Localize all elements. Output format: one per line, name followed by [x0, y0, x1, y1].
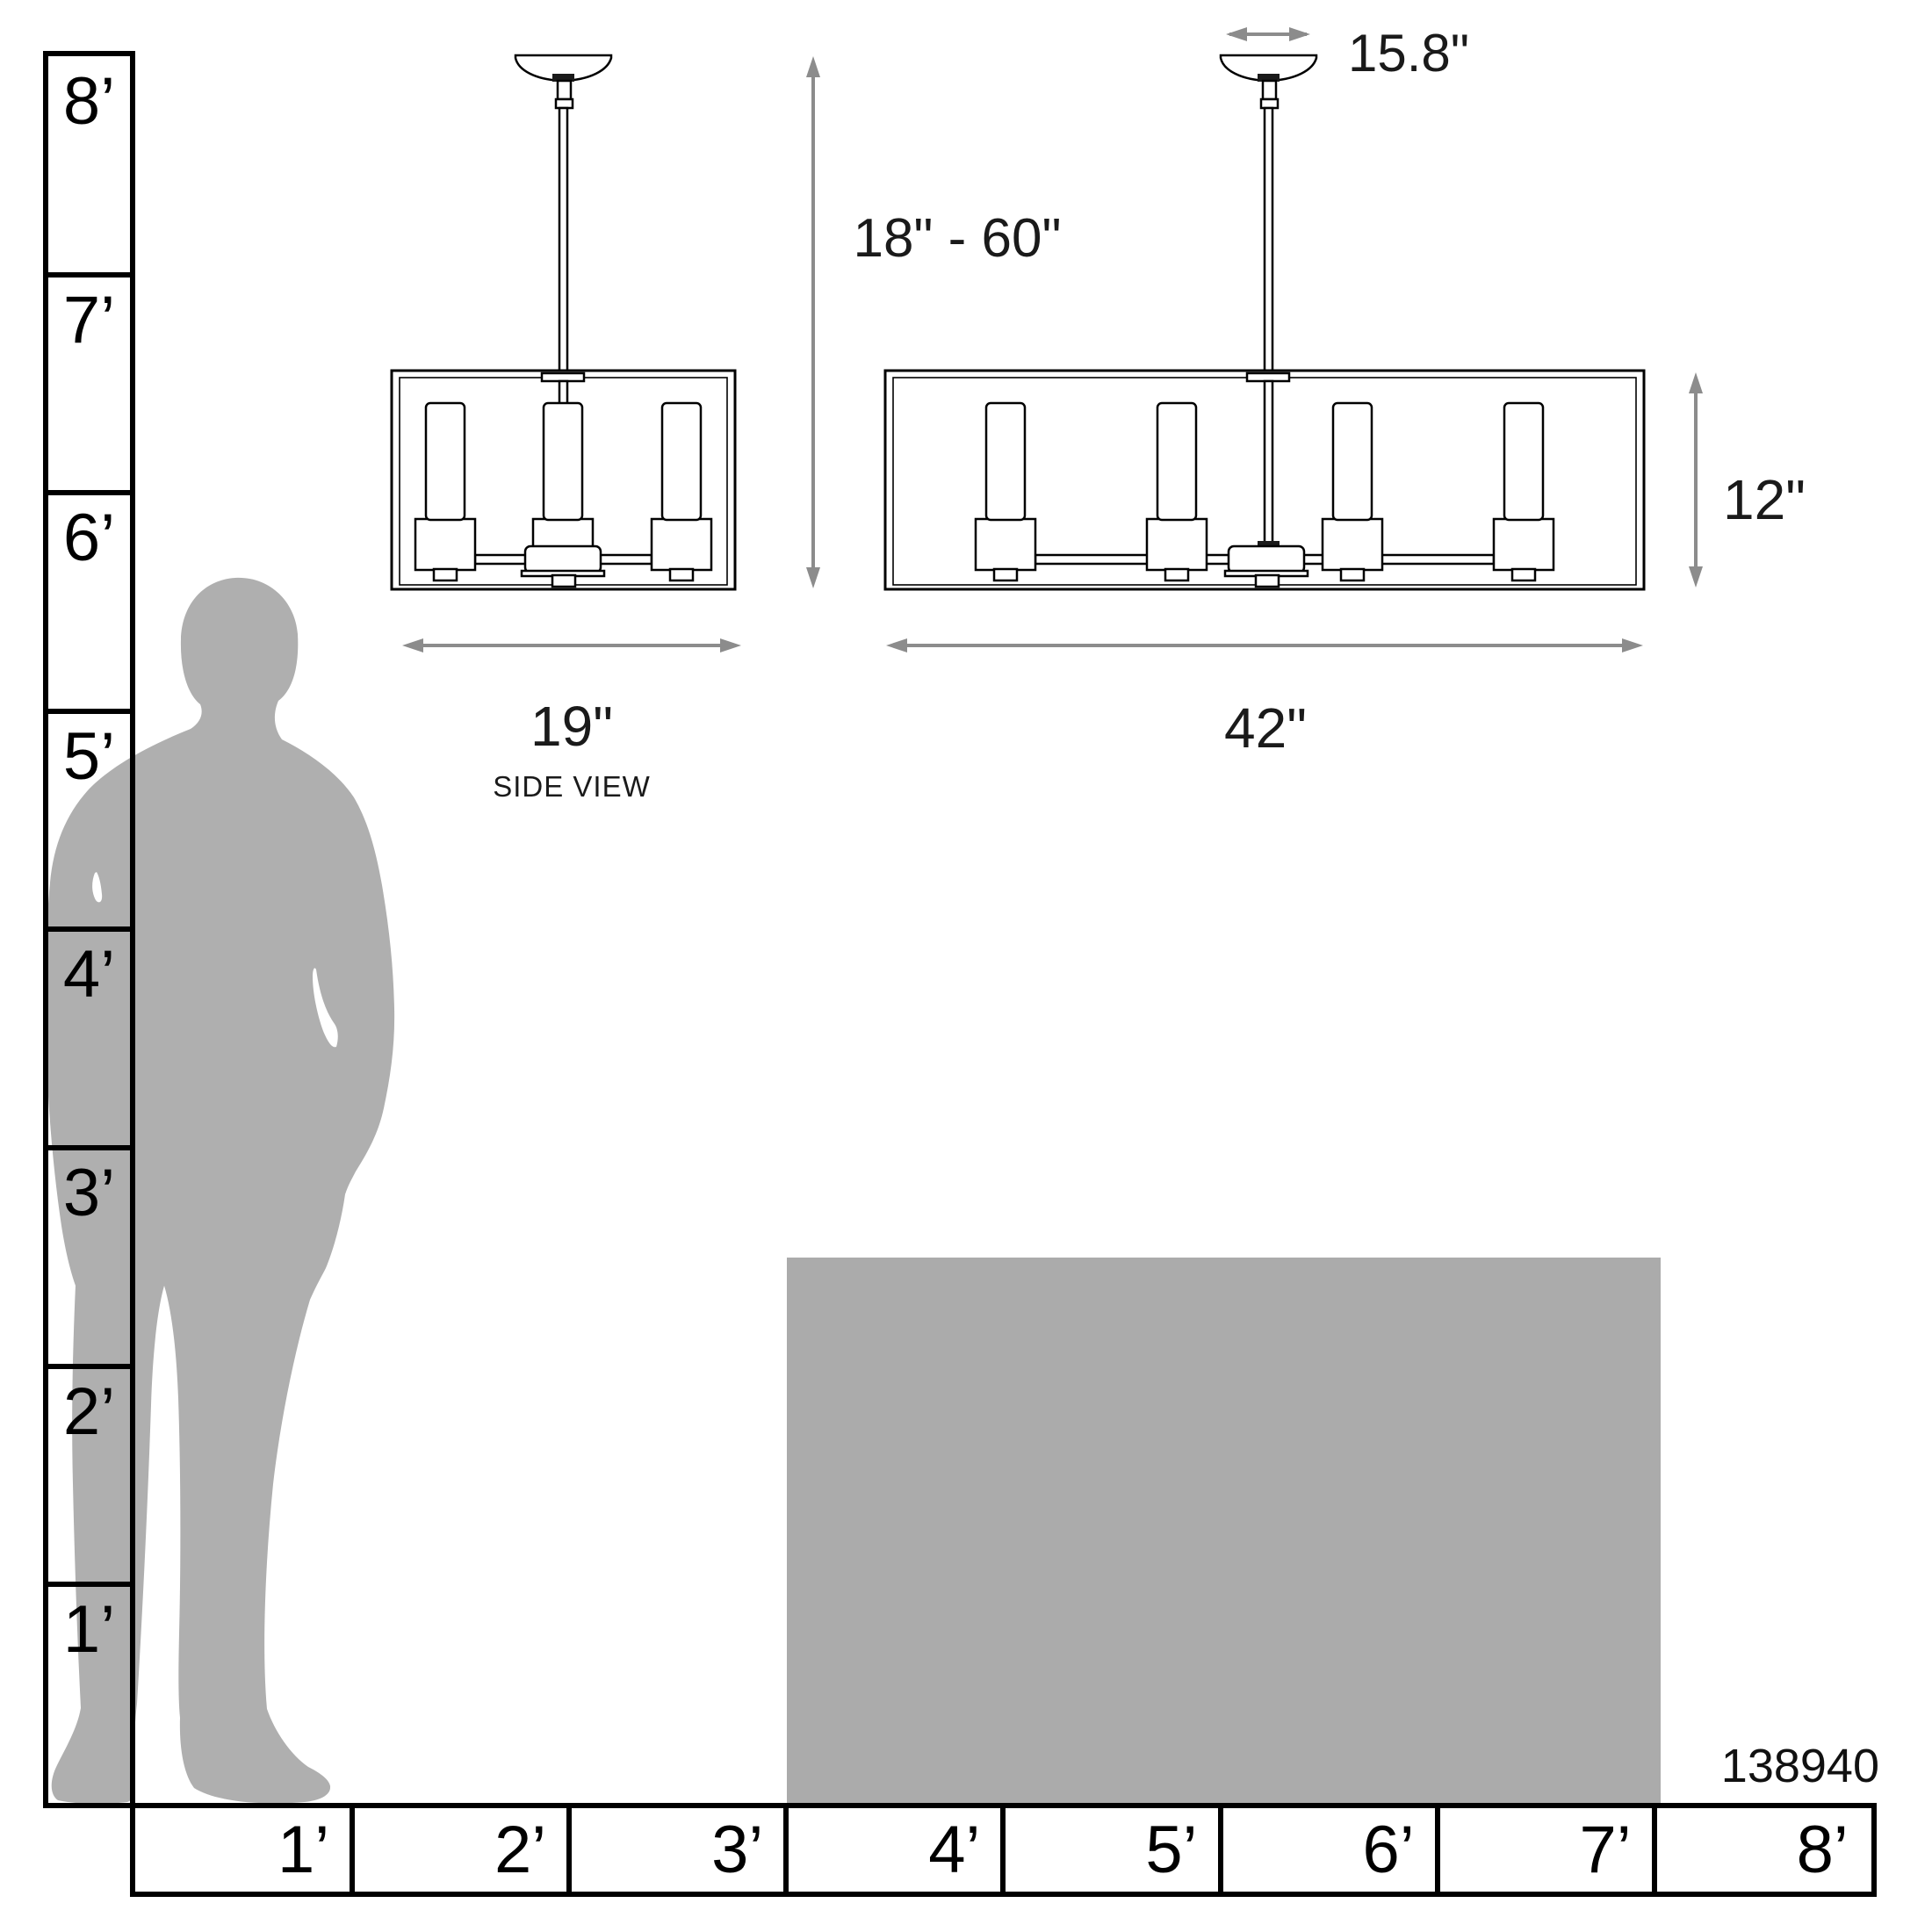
- ruler-divider: [48, 1145, 130, 1150]
- diagram-line-art: [0, 0, 1932, 1932]
- socket-nub-1: [994, 569, 1017, 580]
- vertical-ruler-label: 6’: [48, 505, 130, 572]
- front-width-label: 42": [1178, 697, 1353, 759]
- horizontal-ruler-label: 3’: [569, 1808, 786, 1892]
- ruler-divider: [48, 490, 130, 495]
- horizontal-ruler-label: 5’: [1003, 1808, 1220, 1892]
- ruler-divider: [48, 1364, 130, 1369]
- socket-nub-right: [670, 569, 693, 580]
- frame-flange: [542, 373, 584, 381]
- glass-center: [544, 403, 582, 520]
- down-rod: [559, 108, 567, 371]
- product-number: 138940: [1669, 1741, 1879, 1792]
- ruler-divider: [48, 926, 130, 932]
- socket-2: [1147, 519, 1207, 570]
- side-view-drawing: [392, 55, 735, 589]
- vertical-ruler-label: 3’: [48, 1160, 130, 1227]
- front-view-drawing: [885, 55, 1644, 589]
- glass-3: [1333, 403, 1372, 520]
- side-width-label: 19": [484, 696, 660, 757]
- socket-left: [415, 519, 475, 570]
- inner-rod: [1265, 381, 1272, 544]
- center-hub: [525, 546, 601, 573]
- vertical-feet-ruler: 8’7’6’5’4’3’2’1’: [43, 51, 135, 1808]
- socket-nub-left: [434, 569, 457, 580]
- front-width-arrow-icon: [886, 638, 1643, 652]
- down-rod: [1265, 108, 1272, 371]
- glass-left: [426, 403, 465, 520]
- fixture-height-arrow-icon: [1689, 372, 1703, 588]
- horizontal-ruler-label: 7’: [1438, 1808, 1654, 1892]
- socket-4: [1494, 519, 1554, 570]
- horizontal-ruler-label: 1’: [135, 1808, 352, 1892]
- horizontal-ruler-label: 6’: [1221, 1808, 1438, 1892]
- socket-3: [1323, 519, 1382, 570]
- socket-right: [652, 519, 711, 570]
- vertical-ruler-label: 4’: [48, 941, 130, 1008]
- horizontal-ruler-label: 8’: [1654, 1808, 1871, 1892]
- vertical-ruler-label: 7’: [48, 287, 130, 354]
- glass-right: [662, 403, 701, 520]
- vertical-ruler-label: 5’: [48, 724, 130, 790]
- stem-collar: [558, 81, 571, 99]
- vertical-ruler-label: 1’: [48, 1597, 130, 1663]
- hub-nub: [1256, 575, 1279, 587]
- ruler-divider: [48, 709, 130, 714]
- ruler-divider: [48, 272, 130, 278]
- socket-nub-3: [1341, 569, 1364, 580]
- socket-nub-2: [1165, 569, 1188, 580]
- stem-band: [556, 99, 573, 108]
- socket-1: [976, 519, 1035, 570]
- stem-band: [1261, 99, 1278, 108]
- side-width-arrow-icon: [402, 638, 741, 652]
- glass-4: [1504, 403, 1543, 520]
- canopy-width-label: 15.8": [1348, 25, 1469, 83]
- horizontal-ruler-label: 4’: [786, 1808, 1003, 1892]
- horizontal-ruler-label: 2’: [352, 1808, 569, 1892]
- socket-nub-center: [552, 575, 575, 587]
- canopy-width-arrow-icon: [1226, 27, 1310, 41]
- frame-flange: [1247, 373, 1289, 381]
- center-hub: [1229, 546, 1304, 573]
- vertical-ruler-label: 8’: [48, 68, 130, 135]
- horizontal-feet-ruler: 1’2’3’4’5’6’7’8’: [130, 1803, 1877, 1897]
- suspension-height-label: 18" - 60": [850, 209, 1064, 269]
- stem-collar: [1263, 81, 1276, 99]
- glass-1: [986, 403, 1025, 520]
- fixture-height-label: 12": [1723, 469, 1806, 530]
- side-view-caption: SIDE VIEW: [484, 771, 660, 803]
- ruler-divider: [48, 1582, 130, 1587]
- socket-nub-4: [1512, 569, 1535, 580]
- suspension-height-arrow-icon: [806, 56, 820, 588]
- glass-2: [1157, 403, 1196, 520]
- vertical-ruler-label: 2’: [48, 1379, 130, 1445]
- diagram-canvas: 8’7’6’5’4’3’2’1’ 1’2’3’4’5’6’7’8’ 15.8" …: [0, 0, 1932, 1932]
